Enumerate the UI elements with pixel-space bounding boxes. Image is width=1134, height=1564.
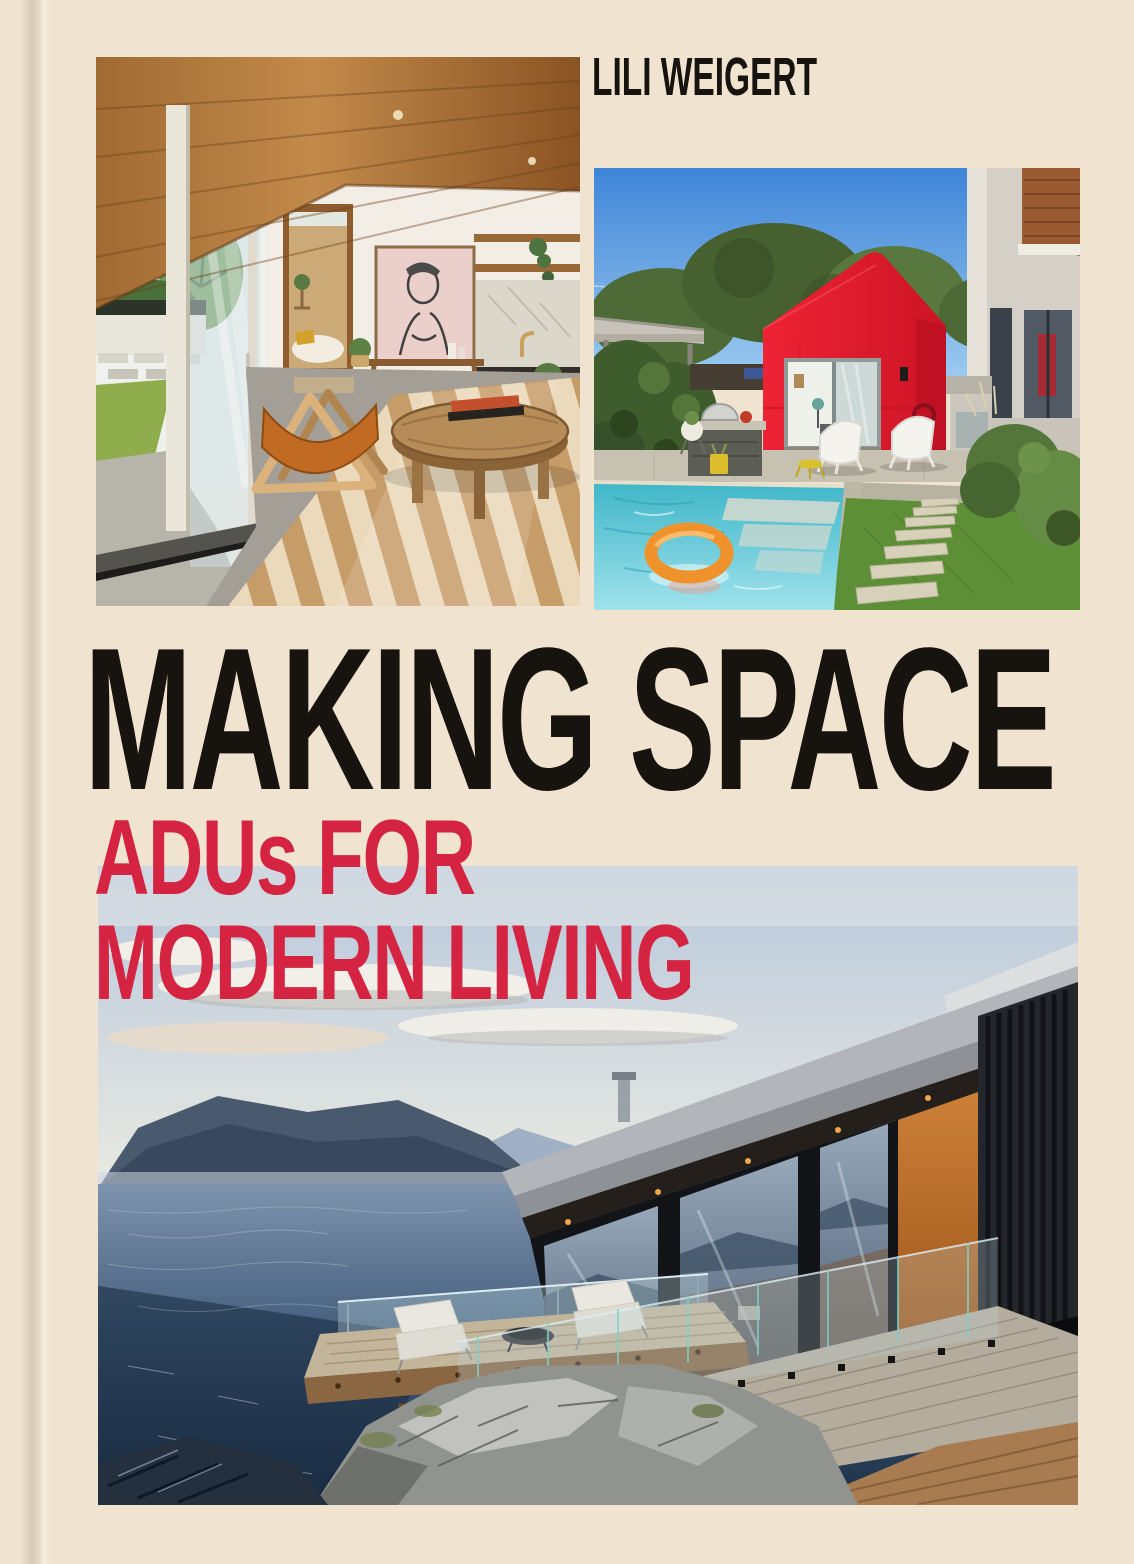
photo-interior-living: [96, 57, 580, 606]
book-subtitle: ADUs FOR MODERN LIVING: [94, 805, 930, 1015]
hallway-bedroom-doorway: [283, 204, 353, 374]
chimney: [618, 1078, 630, 1122]
pool: [594, 482, 844, 610]
outdoor-kitchen-island: [681, 404, 766, 476]
spine-crease: [20, 0, 50, 1564]
interior-illustration: [96, 57, 580, 606]
author-name-text: LILI WEIGERT: [592, 50, 817, 104]
book-cover: LILI WEIGERT MAKING SPACE ADUs FOR MODER…: [0, 0, 1134, 1564]
subtitle-line-2: MODERN LIVING: [94, 910, 693, 1015]
author-name: LILI WEIGERT: [592, 50, 955, 104]
book-title-text: MAKING SPACE: [84, 618, 1054, 821]
book-title: MAKING SPACE: [84, 618, 1134, 821]
backyard-illustration: [594, 168, 1080, 610]
wall-sconce: [900, 367, 908, 381]
yellow-stool: [798, 460, 822, 469]
framed-artwork: [376, 247, 474, 361]
photo-backyard-adu: [594, 168, 1080, 610]
subtitle-line-1: ADUs FOR: [94, 805, 693, 910]
